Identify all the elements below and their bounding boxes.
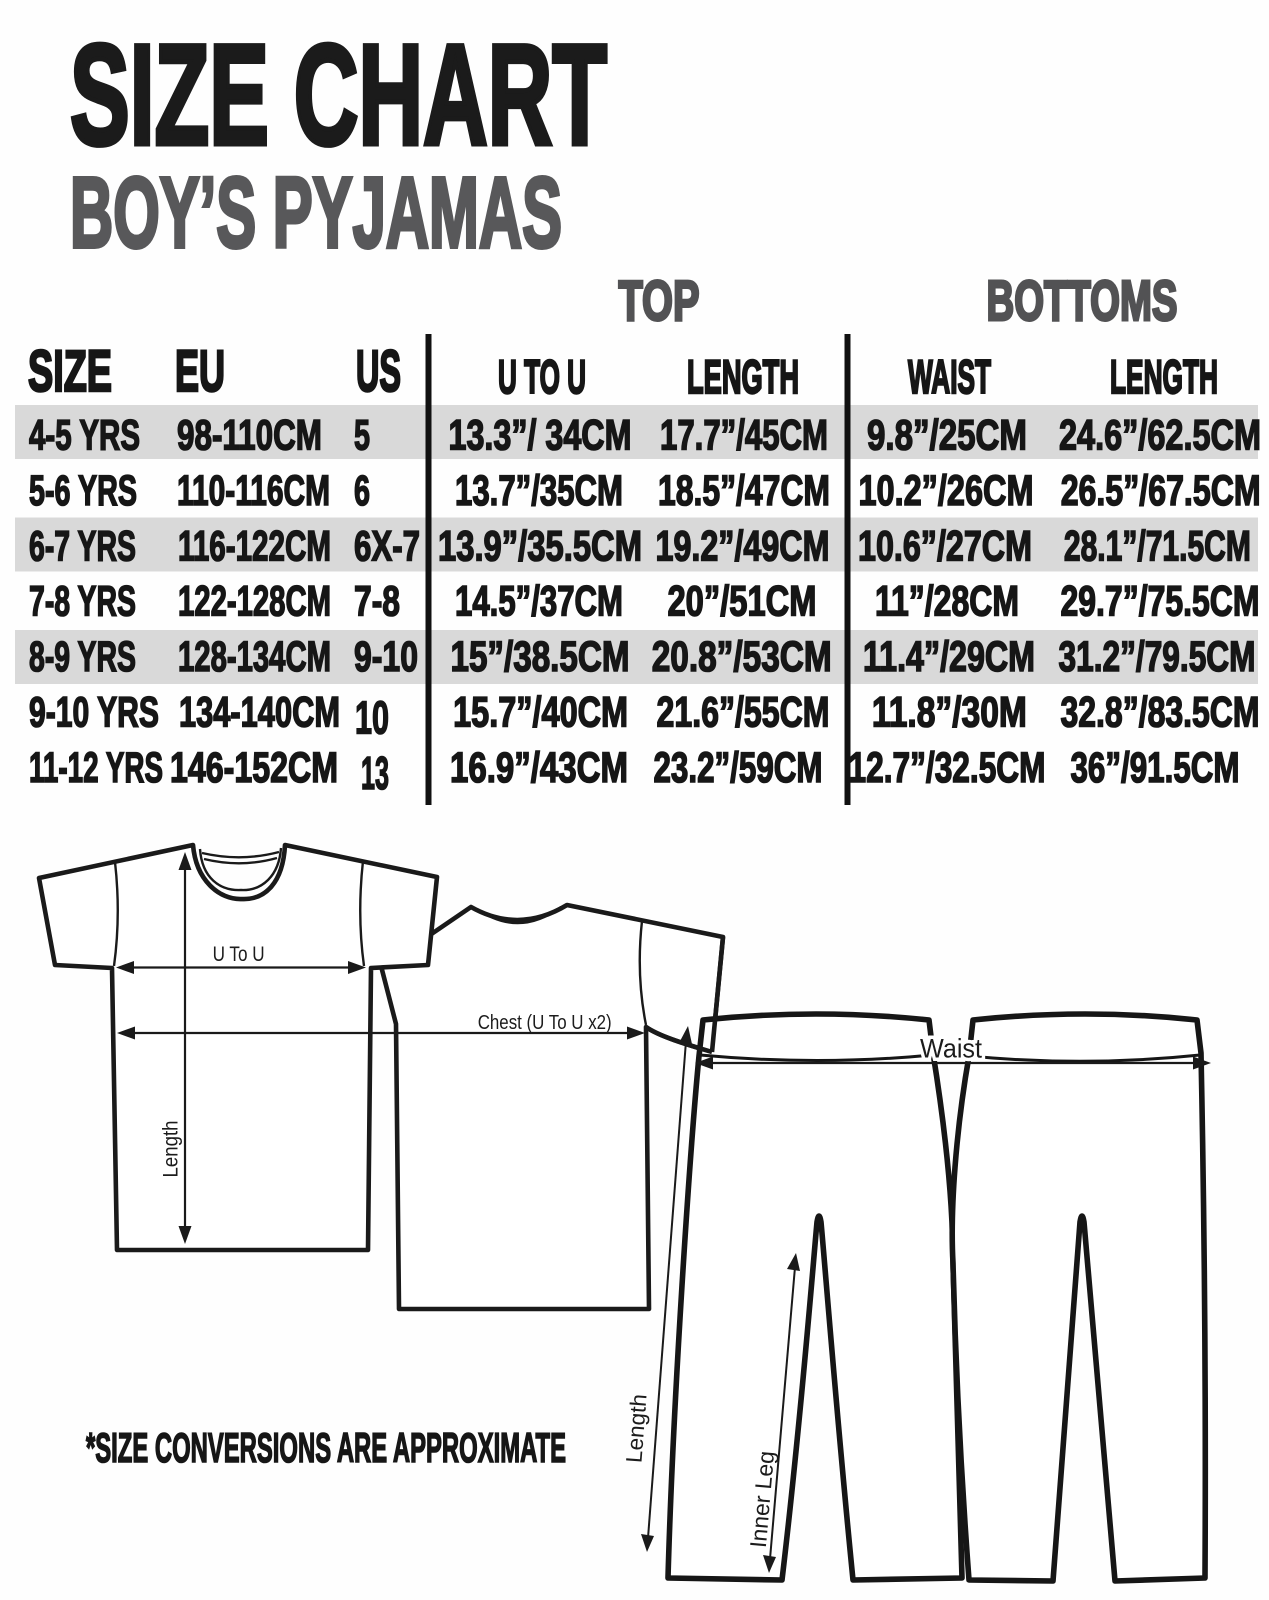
svg-text:16.9”/43CM: 16.9”/43CM	[450, 744, 628, 792]
svg-text:11.8”/30M: 11.8”/30M	[872, 689, 1027, 737]
svg-text:SIZE: SIZE	[28, 339, 112, 404]
svg-text:U To U: U To U	[213, 943, 265, 966]
svg-text:32.8”/83.5CM: 32.8”/83.5CM	[1061, 689, 1260, 737]
svg-text:14.5”/37CM: 14.5”/37CM	[455, 578, 623, 626]
svg-text:134-140CM: 134-140CM	[179, 689, 340, 737]
svg-text:24.6”/62.5CM: 24.6”/62.5CM	[1059, 412, 1261, 460]
svg-text:Waist: Waist	[920, 1034, 983, 1064]
svg-text:122-128CM: 122-128CM	[178, 578, 331, 626]
svg-text:Chest (U To U x2): Chest (U To U x2)	[478, 1011, 612, 1034]
svg-text:US: US	[356, 339, 401, 404]
svg-text:28.1”/71.5CM: 28.1”/71.5CM	[1064, 522, 1251, 570]
svg-text:9-10 YRS: 9-10 YRS	[29, 689, 159, 737]
svg-text:23.2”/59CM: 23.2”/59CM	[654, 744, 823, 792]
svg-text:98-110CM: 98-110CM	[177, 412, 322, 460]
svg-text:BOY’S PYJAMAS: BOY’S PYJAMAS	[70, 157, 562, 269]
svg-text:5-6 YRS: 5-6 YRS	[29, 467, 137, 515]
svg-text:WAIST: WAIST	[908, 350, 991, 403]
svg-text:10: 10	[355, 692, 389, 744]
svg-text:11.4”/29CM: 11.4”/29CM	[863, 633, 1035, 681]
svg-text:11”/28CM: 11”/28CM	[875, 578, 1019, 626]
svg-text:31.2”/79.5CM: 31.2”/79.5CM	[1059, 633, 1256, 681]
svg-text:12.7”/32.5CM: 12.7”/32.5CM	[849, 744, 1046, 792]
svg-text:4-5 YRS: 4-5 YRS	[29, 412, 140, 460]
svg-text:26.5”/67.5CM: 26.5”/67.5CM	[1061, 467, 1261, 515]
svg-text:BOTTOMS: BOTTOMS	[987, 269, 1178, 333]
svg-text:13.3”/ 34CM: 13.3”/ 34CM	[449, 412, 632, 460]
svg-text:10.2”/26CM: 10.2”/26CM	[859, 467, 1034, 515]
svg-text:8-9 YRS: 8-9 YRS	[29, 633, 136, 681]
svg-text:110-116CM: 110-116CM	[177, 467, 330, 515]
svg-text:20”/51CM: 20”/51CM	[668, 578, 817, 626]
svg-text:LENGTH: LENGTH	[687, 350, 799, 403]
svg-text:18.5”/47CM: 18.5”/47CM	[658, 467, 830, 515]
svg-text:Length: Length	[160, 1121, 183, 1178]
svg-text:9.8”/25CM: 9.8”/25CM	[867, 412, 1027, 460]
svg-text:Length: Length	[621, 1393, 651, 1464]
svg-text:128-134CM: 128-134CM	[178, 633, 331, 681]
svg-text:15”/38.5CM: 15”/38.5CM	[451, 633, 630, 681]
svg-text:6: 6	[354, 467, 370, 515]
svg-text:36”/91.5CM: 36”/91.5CM	[1071, 744, 1240, 792]
svg-text:EU: EU	[175, 339, 225, 404]
svg-text:7-8: 7-8	[354, 578, 400, 626]
svg-text:19.2”/49CM: 19.2”/49CM	[656, 522, 830, 570]
svg-text:7-8 YRS: 7-8 YRS	[29, 578, 136, 626]
svg-text:*SIZE CONVERSIONS ARE APPROXIM: *SIZE CONVERSIONS ARE APPROXIMATE	[86, 1425, 566, 1471]
svg-text:21.6”/55CM: 21.6”/55CM	[657, 689, 830, 737]
svg-text:29.7”/75.5CM: 29.7”/75.5CM	[1061, 578, 1260, 626]
svg-text:13: 13	[361, 747, 389, 799]
svg-text:15.7”/40CM: 15.7”/40CM	[453, 689, 628, 737]
svg-text:116-122CM: 116-122CM	[178, 522, 331, 570]
svg-text:U TO U: U TO U	[498, 350, 586, 403]
svg-text:11-12 YRS: 11-12 YRS	[29, 744, 163, 792]
svg-text:SIZE CHART: SIZE CHART	[70, 16, 607, 175]
svg-text:TOP: TOP	[619, 269, 700, 333]
svg-text:5: 5	[354, 412, 370, 460]
svg-text:13.7”/35CM: 13.7”/35CM	[455, 467, 623, 515]
svg-text:LENGTH: LENGTH	[1110, 350, 1218, 403]
svg-text:6X-7: 6X-7	[354, 522, 420, 570]
svg-text:10.6”/27CM: 10.6”/27CM	[858, 522, 1032, 570]
svg-text:146-152CM: 146-152CM	[170, 744, 338, 792]
svg-text:20.8”/53CM: 20.8”/53CM	[652, 633, 832, 681]
svg-text:6-7 YRS: 6-7 YRS	[29, 522, 136, 570]
svg-text:17.7”/45CM: 17.7”/45CM	[660, 412, 828, 460]
svg-text:13.9”/35.5CM: 13.9”/35.5CM	[438, 522, 642, 570]
svg-text:9-10: 9-10	[354, 633, 418, 681]
